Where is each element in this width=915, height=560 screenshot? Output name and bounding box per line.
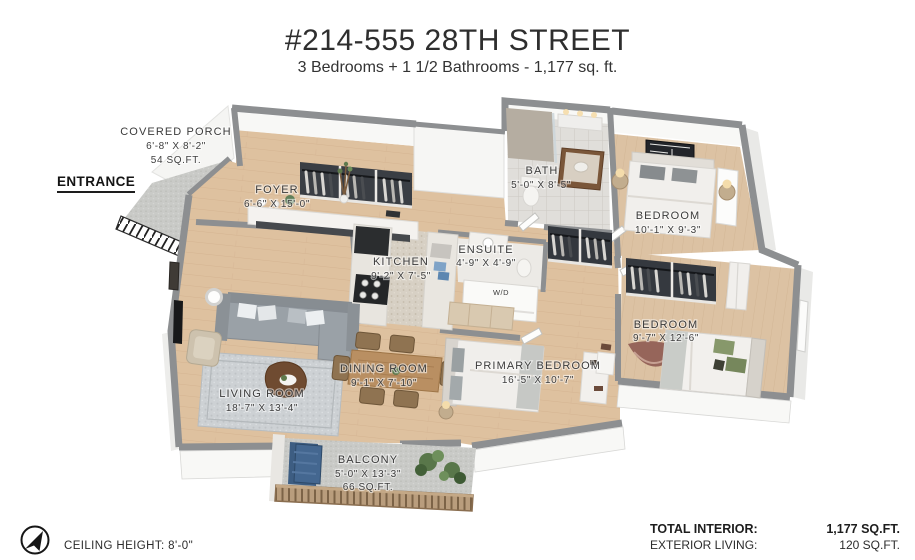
pillow xyxy=(639,165,665,181)
area-totals: TOTAL INTERIOR: 1,177 SQ.FT. EXTERIOR LI… xyxy=(650,522,900,553)
pillow xyxy=(237,303,257,319)
lamp xyxy=(723,180,732,189)
svg-text:9'-1" X 7'-10": 9'-1" X 7'-10" xyxy=(351,378,417,389)
svg-text:18'-7" X 13'-4": 18'-7" X 13'-4" xyxy=(226,403,298,414)
wall-art xyxy=(169,262,179,290)
svg-text:6'-8" X 8'-2": 6'-8" X 8'-2" xyxy=(146,141,206,152)
label-bath: BATH xyxy=(526,165,559,177)
compass-icon xyxy=(15,520,57,560)
fridge xyxy=(354,226,390,256)
exterior-living-value: 120 SQ.FT. xyxy=(839,538,900,554)
svg-text:54 SQ.FT.: 54 SQ.FT. xyxy=(151,155,201,166)
pillow-dark xyxy=(713,359,725,371)
svg-text:16'-5" X 10'-7": 16'-5" X 10'-7" xyxy=(502,375,574,386)
svg-text:6'-6" X 15'-0": 6'-6" X 15'-0" xyxy=(244,199,310,210)
blue-dishes xyxy=(434,261,447,271)
svg-text:5'-0" X 8'-5": 5'-0" X 8'-5" xyxy=(511,180,571,191)
exterior-living-label: EXTERIOR LIVING: xyxy=(650,538,757,554)
label-bedroom-right: BEDROOM xyxy=(634,319,699,331)
hall-closet xyxy=(548,226,612,267)
label-foyer: FOYER xyxy=(255,184,298,196)
label-covered-porch: COVERED PORCH xyxy=(120,126,231,138)
label-bedroom-top: BEDROOM xyxy=(636,210,701,222)
floorplan-drawing: W/D xyxy=(0,0,915,560)
label-kitchen: KITCHEN xyxy=(373,256,429,268)
pillow-green xyxy=(713,339,735,356)
armchair xyxy=(186,329,222,367)
label-primary-bedroom: PRIMARY BEDROOM xyxy=(475,360,601,372)
pillow xyxy=(451,348,465,373)
ceiling-height-note: CEILING HEIGHT: 8'-0" xyxy=(64,540,193,552)
floorplan-page: W/D xyxy=(0,0,915,560)
ensuite-toilet xyxy=(517,259,531,277)
pillow xyxy=(449,376,463,401)
pillow xyxy=(671,168,697,184)
laundry-label: W/D xyxy=(493,288,509,297)
tv xyxy=(173,300,183,344)
label-dining-room: DINING ROOM xyxy=(340,363,428,375)
floor-lamp xyxy=(207,290,222,305)
lamp xyxy=(616,169,625,178)
label-balcony: BALCONY xyxy=(338,454,398,466)
total-interior-label: TOTAL INTERIOR: xyxy=(650,522,758,538)
total-interior-row: TOTAL INTERIOR: 1,177 SQ.FT. xyxy=(650,522,900,538)
sink xyxy=(574,162,588,172)
blue-dishes xyxy=(438,271,450,280)
svg-text:66 SQ.FT.: 66 SQ.FT. xyxy=(343,482,393,493)
pillow-green xyxy=(725,357,747,374)
lamp xyxy=(442,401,450,409)
page-title: #214-555 28TH STREET xyxy=(0,24,915,58)
shower xyxy=(506,108,554,162)
svg-text:4'-9" X 4'-9": 4'-9" X 4'-9" xyxy=(456,258,516,269)
svg-text:9'-7" X 12'-6": 9'-7" X 12'-6" xyxy=(633,333,699,344)
pillow xyxy=(257,305,276,321)
sink xyxy=(430,243,452,259)
label-ensuite: ENSUITE xyxy=(458,244,513,256)
svg-text:5'-0" X 13'-3": 5'-0" X 13'-3" xyxy=(335,469,401,480)
lounge-chairs xyxy=(288,442,322,486)
label-living-room: LIVING ROOM xyxy=(219,388,304,400)
pillow xyxy=(305,310,325,326)
bath-west-wall-block xyxy=(414,124,504,198)
pillow xyxy=(287,308,307,324)
exterior-living-row: EXTERIOR LIVING: 120 SQ.FT. xyxy=(650,538,900,554)
entrance-label: ENTRANCE xyxy=(57,174,135,193)
svg-text:9'-2" X 7'-5": 9'-2" X 7'-5" xyxy=(371,271,431,282)
total-interior-value: 1,177 SQ.FT. xyxy=(826,522,900,538)
svg-text:10'-1" X 9'-3": 10'-1" X 9'-3" xyxy=(635,225,701,236)
page-subtitle: 3 Bedrooms + 1 1/2 Bathrooms - 1,177 sq.… xyxy=(0,59,915,77)
